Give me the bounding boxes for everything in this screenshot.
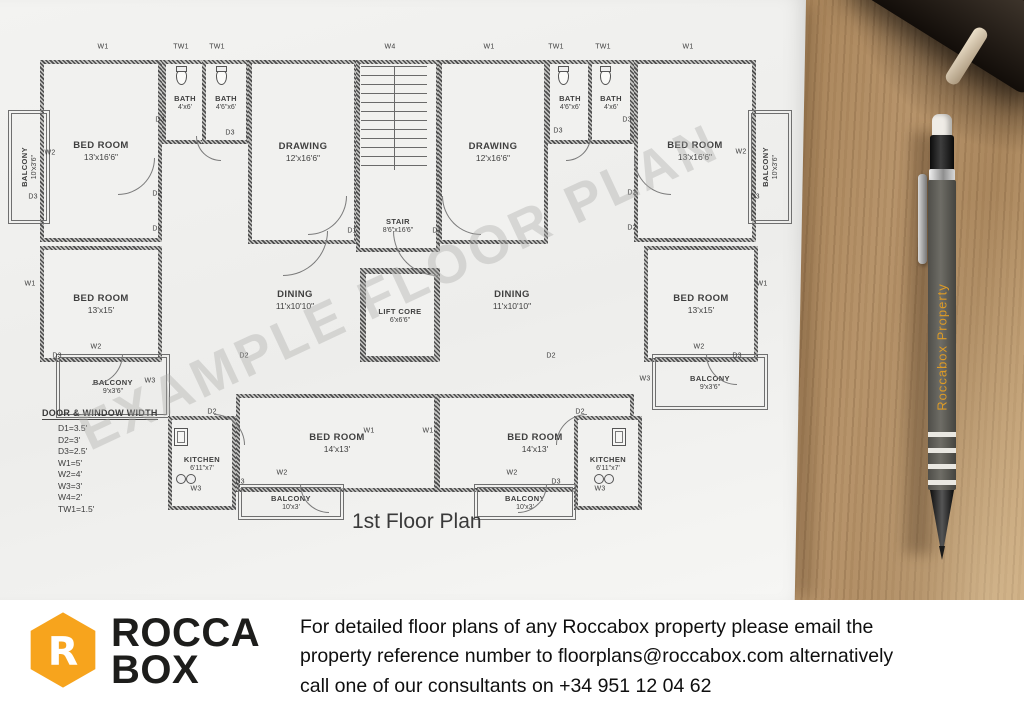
room-bedroom-top-left: BED ROOM13'x16'6" [40, 60, 162, 242]
legend-item: W2=4' [58, 469, 158, 481]
room-balcony-top-right: BALCONY10'x3'6" [748, 110, 792, 224]
room-size: 11'x10'10" [276, 301, 314, 311]
marker-d2: D2 [239, 353, 248, 360]
door-swing-arc [196, 136, 221, 161]
room-name: DRAWING [469, 141, 518, 152]
marker-w2: W2 [694, 344, 705, 351]
burners-icon [176, 474, 196, 483]
marker-d3: D3 [52, 353, 61, 360]
room-size: 9'x3'6" [103, 388, 123, 395]
burners-icon [594, 474, 614, 483]
room-bedroom-bottom-left: BED ROOM14'x13' [236, 394, 438, 492]
marker-w2: W2 [507, 470, 518, 477]
room-size: 10'x3'6" [772, 155, 779, 179]
logo-wordmark: ROCCA BOX [111, 615, 260, 689]
room-size: 14'x13' [324, 444, 350, 454]
room-size: 13'x16'6" [678, 152, 712, 162]
room-name: BATH [600, 94, 622, 103]
marker-tw1: TW1 [595, 44, 610, 51]
floor-plan-paper: DOOR & WINDOW WIDTH D1=3.5'D2=3'D3=2.5'W… [0, 0, 806, 601]
room-drawing-left: DRAWING12'x16'6" [248, 60, 358, 244]
marker-d3: D3 [732, 353, 741, 360]
pencil-lead [939, 546, 945, 560]
room-size: 9'x3'6" [700, 384, 720, 391]
door-window-legend: DOOR & WINDOW WIDTH D1=3.5'D2=3'D3=2.5'W… [42, 408, 158, 515]
sink-icon [612, 428, 626, 446]
legend-item: D3=2.5' [58, 446, 158, 458]
room-name: DINING [277, 289, 313, 300]
legend-item: W1=5' [58, 458, 158, 470]
marker-w1: W1 [25, 281, 36, 288]
marker-d1: D1 [347, 228, 356, 235]
room-size: 13'x15' [88, 305, 114, 315]
marker-d3: D3 [622, 117, 631, 124]
room-name: BED ROOM [73, 293, 128, 304]
legend-item: D2=3' [58, 435, 158, 447]
logo-word-box: BOX [111, 652, 260, 689]
room-size: 6'11"x7' [190, 465, 214, 472]
roccabox-hexagon-icon: R [30, 612, 96, 688]
room-bath-right-b: BATH4'x6' [588, 60, 634, 144]
marker-w4: W4 [385, 44, 396, 51]
wooden-desk-surface: Roccabox Property [790, 0, 1024, 601]
marker-d2: D2 [207, 409, 216, 416]
marker-tw1: TW1 [209, 44, 224, 51]
footer-line-2: property reference number to floorplans@… [300, 642, 893, 671]
room-lift-core: LIFT CORE6'x6'6" [360, 268, 440, 362]
room-name: BALCONY [761, 147, 770, 187]
legend-item: D1=3.5' [58, 423, 158, 435]
marker-w2: W2 [277, 470, 288, 477]
sink-icon [174, 428, 188, 446]
marker-d3: D3 [750, 194, 759, 201]
room-name: BED ROOM [309, 432, 364, 443]
marker-d2: D2 [627, 190, 636, 197]
footer-contact-text: For detailed floor plans of any Roccabox… [300, 613, 893, 701]
footer-line-1: For detailed floor plans of any Roccabox… [300, 613, 893, 642]
pencil-brand-text: Roccabox Property [935, 284, 950, 412]
marker-d3: D3 [225, 130, 234, 137]
room-size: 14'x13' [522, 444, 548, 454]
room-size: 10'x3'6" [31, 155, 38, 179]
room-size: 6'11"x7' [596, 465, 620, 472]
room-name: BED ROOM [73, 140, 128, 151]
marker-d3: D3 [155, 117, 164, 124]
marker-d3: D3 [551, 479, 560, 486]
marker-w1: W1 [484, 44, 495, 51]
pencil-tip-cone [930, 490, 954, 548]
dark-pen [844, 0, 1024, 97]
room-size: 4'6"x6' [216, 104, 236, 111]
marker-w1: W1 [98, 44, 109, 51]
svg-text:R: R [48, 629, 79, 675]
room-dining-right: DINING11'x10'10" [452, 252, 572, 348]
room-name: LIFT CORE [378, 307, 421, 316]
marker-w1: W1 [757, 281, 768, 288]
marker-w3: W3 [145, 378, 156, 385]
marker-tw1: TW1 [173, 44, 188, 51]
footer: R ROCCA BOX For detailed floor plans of … [0, 600, 1024, 724]
mechanical-pencil-body: Roccabox Property [928, 180, 956, 490]
marker-d2: D2 [152, 226, 161, 233]
logo-word-rocca: ROCCA [111, 615, 260, 652]
marker-d3: D3 [28, 194, 37, 201]
marker-d2: D2 [546, 353, 555, 360]
footer-line-3: call one of our consultants on +34 951 1… [300, 672, 893, 701]
legend-title: DOOR & WINDOW WIDTH [42, 408, 158, 420]
room-size: 12'x16'6" [286, 153, 320, 163]
marker-d2: D2 [575, 409, 584, 416]
room-size: 4'x6' [178, 104, 192, 111]
pencil-clip [918, 174, 927, 264]
room-size: 13'x16'6" [84, 152, 118, 162]
room-size: 10'x3' [282, 504, 300, 511]
marker-w1: W1 [423, 428, 434, 435]
room-name: DINING [494, 289, 530, 300]
legend-item: W4=2' [58, 492, 158, 504]
marker-tw1: TW1 [548, 44, 563, 51]
marker-d3: D3 [235, 479, 244, 486]
room-name: BATH [215, 94, 237, 103]
room-size: 13'x15' [688, 305, 714, 315]
pencil-ring [928, 432, 956, 437]
room-size: 6'x6'6" [390, 317, 410, 324]
room-name: BATH [559, 94, 581, 103]
marker-d3: D3 [553, 128, 562, 135]
marker-d2: D2 [627, 225, 636, 232]
roccabox-logo: R ROCCA BOX [30, 612, 260, 689]
room-size: 11'x10'10" [493, 301, 531, 311]
marker-w2: W2 [91, 344, 102, 351]
door-swing-arc [566, 136, 591, 161]
marker-d2: D2 [152, 191, 161, 198]
room-name: STAIR [386, 217, 410, 226]
room-name: BATH [174, 94, 196, 103]
marker-w2: W2 [45, 150, 56, 157]
pencil-ring [928, 480, 956, 485]
marker-w1: W1 [683, 44, 694, 51]
room-name: KITCHEN [590, 455, 626, 464]
legend-items: D1=3.5'D2=3'D3=2.5'W1=5'W2=4'W3=3'W4=2'T… [42, 423, 158, 515]
floor-plan: DOOR & WINDOW WIDTH D1=3.5'D2=3'D3=2.5'W… [0, 0, 806, 601]
marker-w3: W3 [640, 376, 651, 383]
marker-w1: W1 [364, 428, 375, 435]
pencil-ring [928, 464, 956, 469]
stair-treads [361, 66, 427, 170]
pencil-ring [928, 448, 956, 453]
marker-w2: W2 [736, 149, 747, 156]
legend-item: W3=3' [58, 481, 158, 493]
marker-d1: D1 [432, 228, 441, 235]
room-name: BED ROOM [667, 140, 722, 151]
room-size: 4'x6' [604, 104, 618, 111]
marker-w3: W3 [191, 486, 202, 493]
room-size: 12'x16'6" [476, 153, 510, 163]
marker-w3: W3 [595, 486, 606, 493]
room-name: DRAWING [279, 141, 328, 152]
plan-title: 1st Floor Plan [352, 510, 482, 534]
room-name: BALCONY [20, 147, 29, 187]
legend-item: TW1=1.5' [58, 504, 158, 516]
photo-of-floor-plan-on-desk: Roccabox Property DOOR & WINDOW WIDTH D1… [0, 0, 1024, 724]
room-name: KITCHEN [184, 455, 220, 464]
room-name: BED ROOM [507, 432, 562, 443]
room-size: 4'6"x6' [560, 104, 580, 111]
room-balcony-top-left: BALCONY10'x3'6" [8, 110, 50, 224]
room-name: BED ROOM [673, 293, 728, 304]
